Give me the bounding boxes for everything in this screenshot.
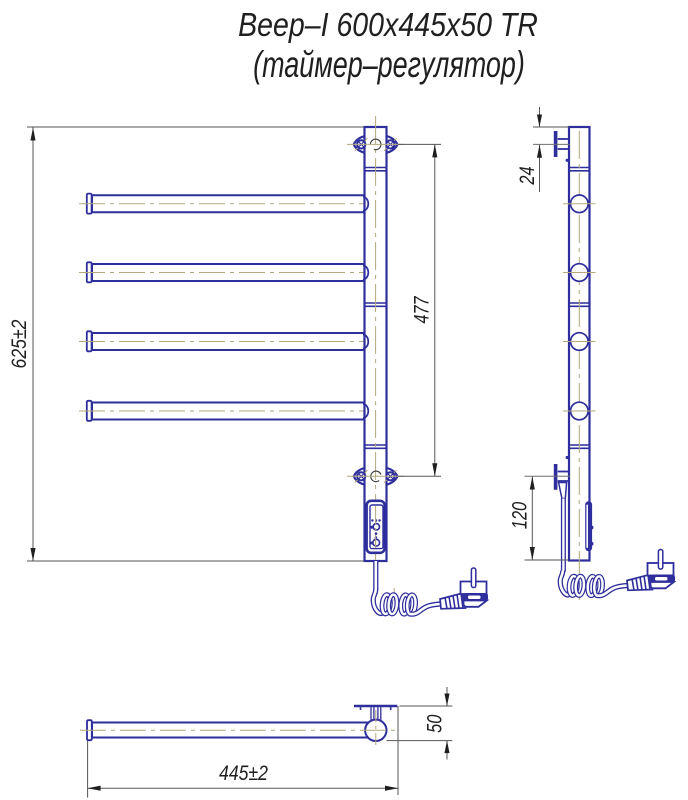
svg-text:445±2: 445±2 bbox=[219, 762, 268, 786]
svg-text:50: 50 bbox=[423, 714, 446, 733]
svg-text:120: 120 bbox=[508, 501, 531, 529]
svg-text:625±2: 625±2 bbox=[8, 319, 32, 368]
svg-text:24: 24 bbox=[515, 166, 538, 185]
svg-text:Веер–І 600х445х50 TR: Веер–І 600х445х50 TR bbox=[238, 6, 538, 43]
svg-text:477: 477 bbox=[410, 295, 433, 324]
svg-text:(таймер–регулятор): (таймер–регулятор) bbox=[253, 44, 525, 85]
